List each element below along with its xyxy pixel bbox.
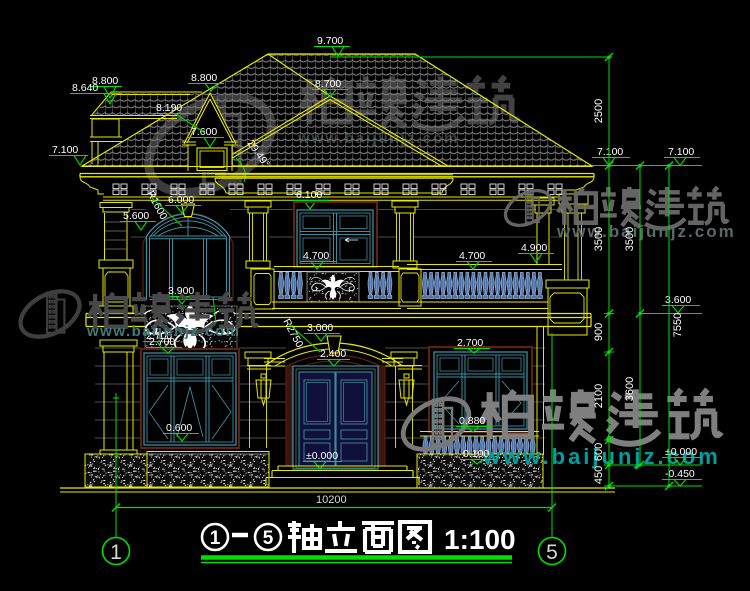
svg-text:2500: 2500 (593, 99, 605, 123)
svg-text:1: 1 (210, 528, 221, 549)
svg-text:6.000: 6.000 (168, 194, 194, 206)
svg-text:5.600: 5.600 (123, 210, 149, 222)
svg-text:0.100: 0.100 (463, 448, 489, 460)
svg-text:3600: 3600 (624, 377, 636, 401)
svg-text:7.100: 7.100 (52, 144, 78, 156)
svg-text:2.700: 2.700 (457, 337, 483, 349)
svg-text:2100: 2100 (593, 384, 605, 408)
svg-text:600: 600 (593, 443, 605, 461)
svg-text:5: 5 (263, 528, 274, 549)
svg-text:7.100: 7.100 (668, 146, 694, 158)
svg-text:8.700: 8.700 (315, 78, 341, 90)
svg-text:0.600: 0.600 (166, 422, 192, 434)
svg-text:4.700: 4.700 (459, 250, 485, 262)
svg-text:450: 450 (593, 466, 605, 484)
svg-text:9.700: 9.700 (317, 35, 343, 47)
svg-text:3500: 3500 (624, 227, 636, 251)
svg-text:www.baijunjz.com: www.baijunjz.com (556, 222, 736, 241)
svg-text:3.000: 3.000 (307, 322, 333, 334)
svg-text:0.880: 0.880 (459, 415, 485, 427)
svg-text:7.100: 7.100 (597, 146, 623, 158)
svg-text:1: 1 (110, 541, 122, 564)
svg-text:±0.000: ±0.000 (306, 450, 338, 462)
svg-text:900: 900 (593, 323, 605, 341)
svg-text:8.640: 8.640 (72, 82, 98, 94)
svg-text:3500: 3500 (593, 227, 605, 251)
svg-text:4.700: 4.700 (303, 250, 329, 262)
svg-text:2.400: 2.400 (320, 348, 346, 360)
svg-text:±0.000: ±0.000 (665, 446, 697, 458)
svg-text:1:100: 1:100 (444, 524, 516, 555)
svg-text:8.800: 8.800 (191, 72, 217, 84)
svg-text:10200: 10200 (316, 494, 347, 506)
svg-text:5: 5 (546, 541, 558, 564)
svg-text:4.900: 4.900 (521, 242, 547, 254)
svg-text:www.baijunjz.com: www.baijunjz.com (86, 323, 240, 340)
svg-text:6.100: 6.100 (296, 189, 322, 201)
svg-text:7550: 7550 (672, 313, 684, 337)
svg-text:8.190: 8.190 (156, 102, 182, 114)
